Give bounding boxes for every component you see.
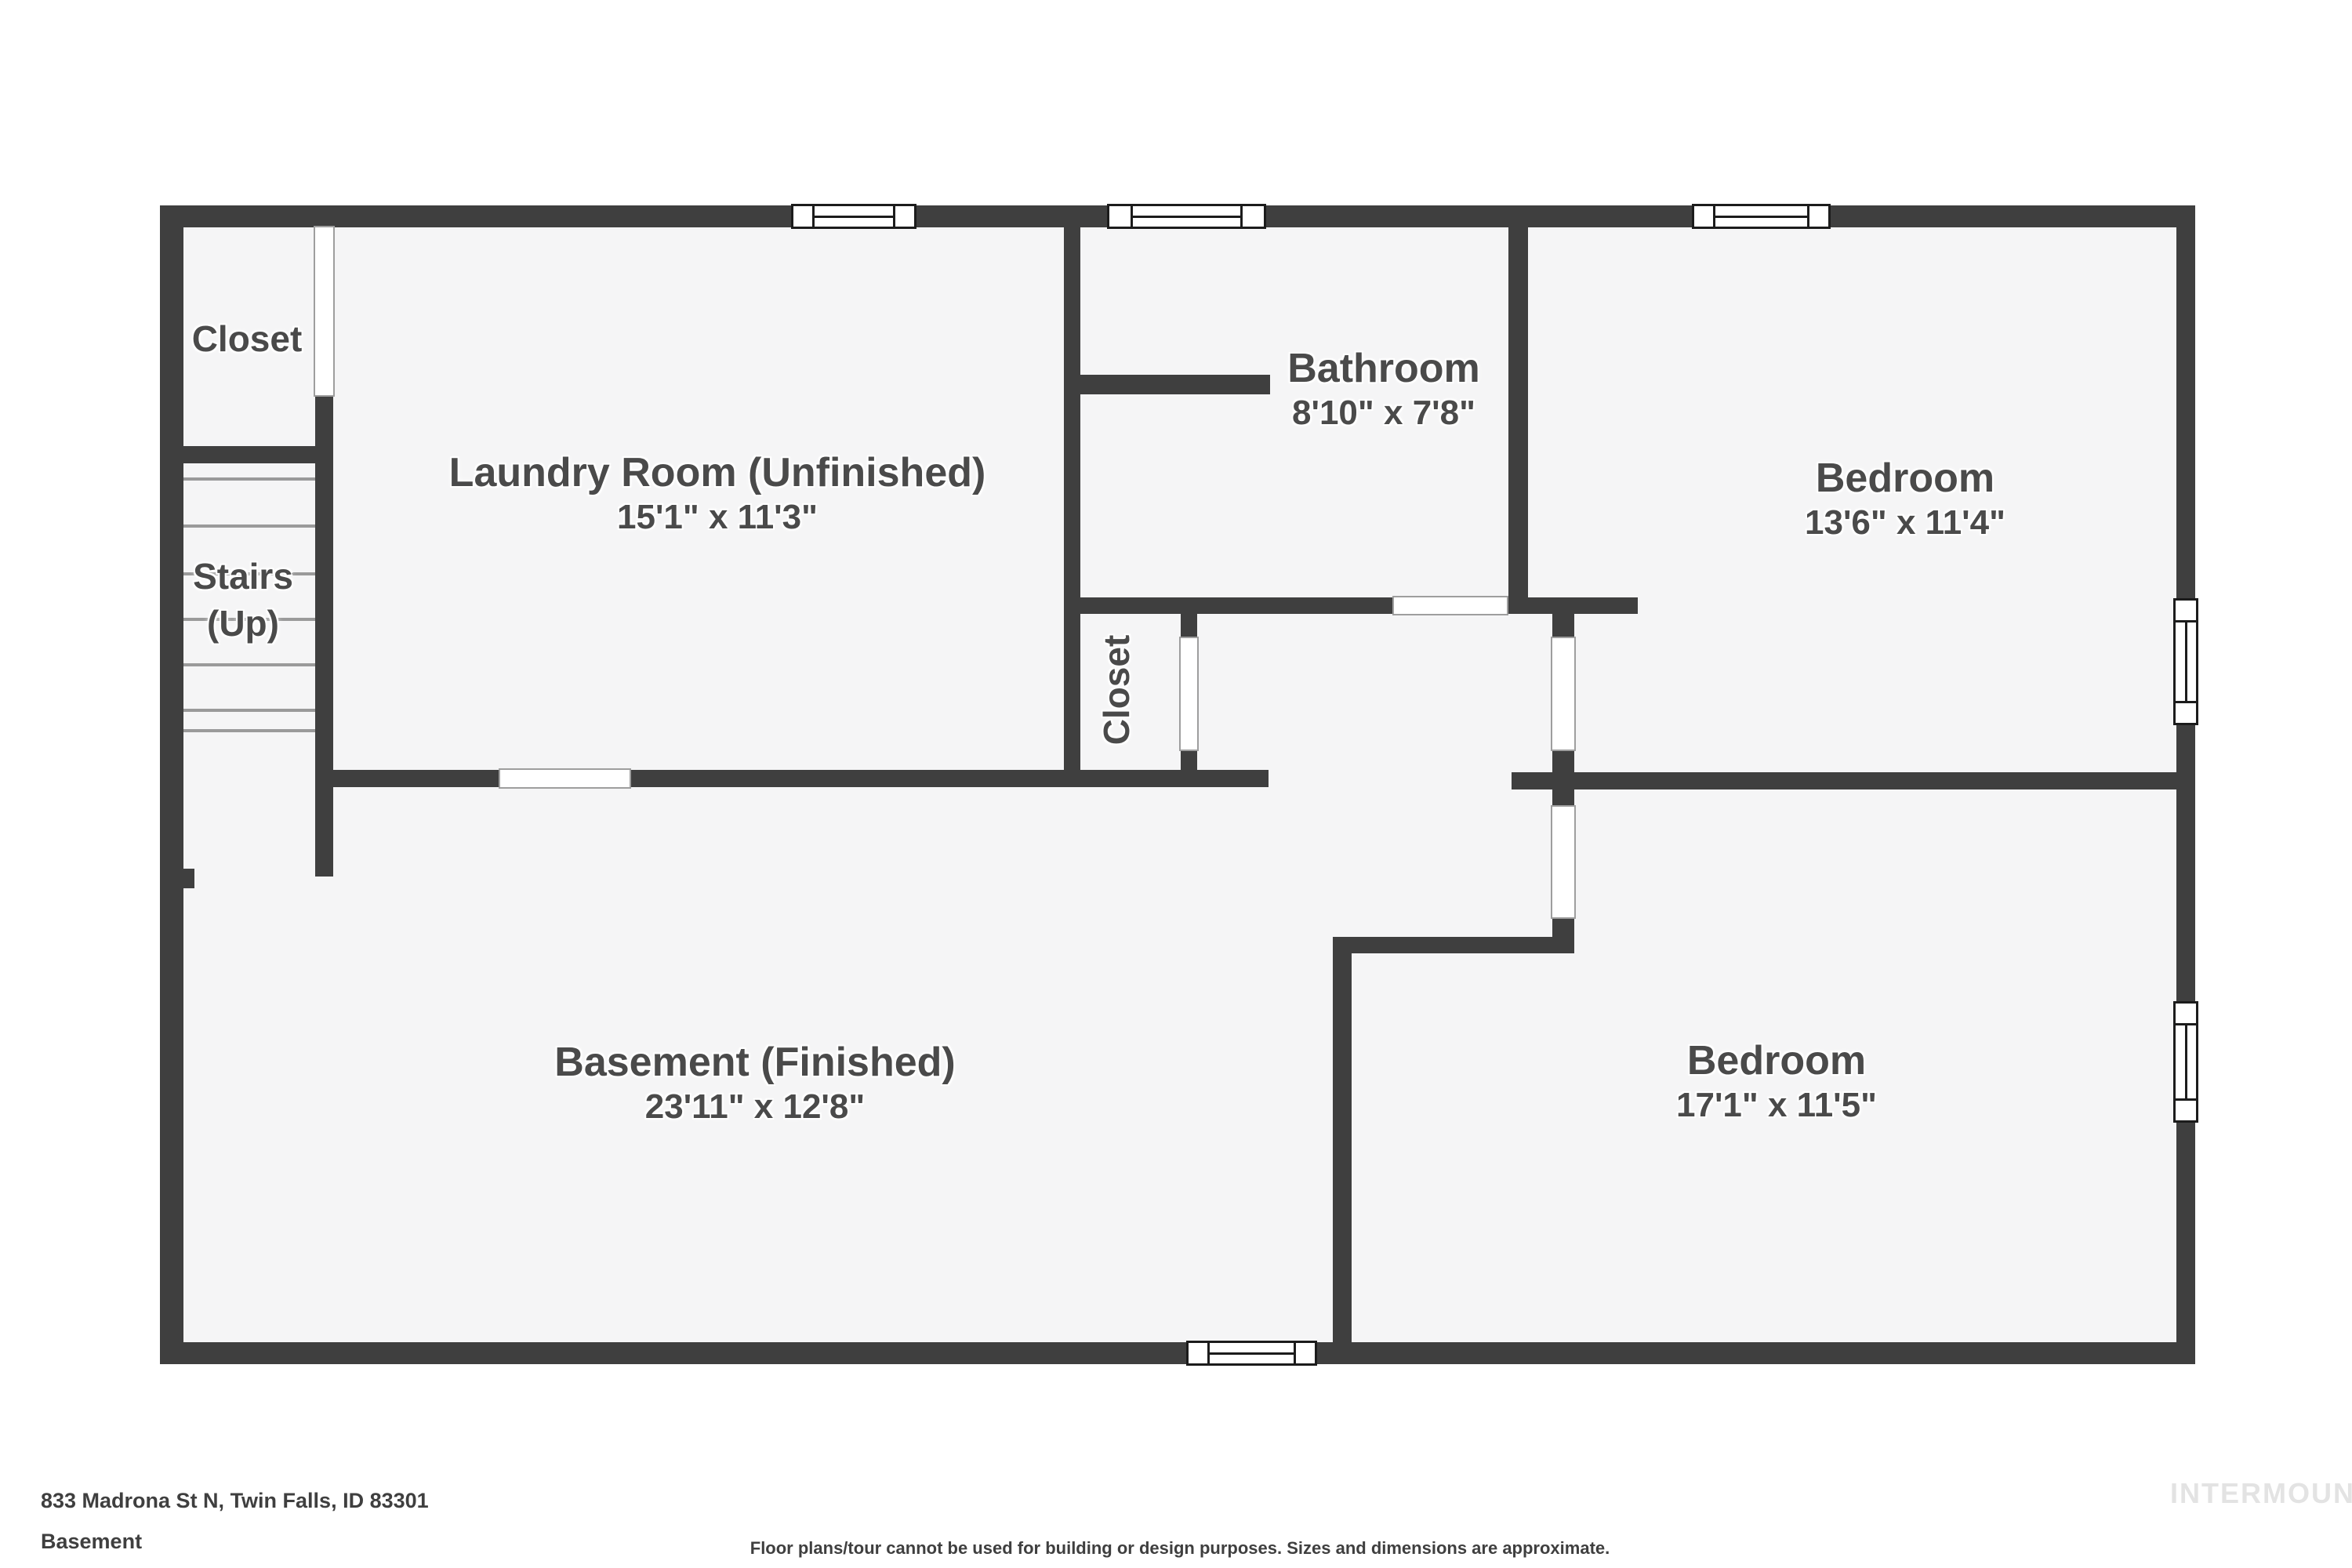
- stair-tread: [183, 477, 315, 481]
- stair-tread: [183, 663, 315, 666]
- bedroom-top-right-name: Bedroom: [1805, 455, 2005, 502]
- laundry-room-dimensions: 15'1" x 11'3": [449, 496, 986, 539]
- hall-closet-label: Closet: [1093, 635, 1140, 746]
- basement-label: Basement (Finished) 23'11" x 12'8": [554, 1039, 955, 1128]
- window-laundry-top: [791, 204, 916, 229]
- bathroom-label: Bathroom 8'10" x 7'8": [1287, 345, 1480, 434]
- wall-closet-top-left-bottom: [160, 446, 333, 463]
- stair-tread: [183, 729, 315, 732]
- window-bedroom-tr-right: [2173, 598, 2198, 725]
- wall-hall-closet-right-lower: [1181, 751, 1197, 787]
- wall-bathroom-bottom-left: [1080, 597, 1392, 614]
- wall-outer-bottom: [160, 1342, 2195, 1364]
- door-gap-bathroom: [1392, 596, 1508, 615]
- wall-outer-left: [160, 205, 183, 1364]
- door-gap-laundry: [499, 768, 631, 789]
- window-bathroom-top: [1107, 204, 1266, 229]
- wall-outer-right: [2176, 205, 2195, 1364]
- closet-top-left-name: Closet: [192, 315, 303, 362]
- door-gap-bedroom-bottom-right: [1551, 805, 1576, 919]
- stair-tread: [183, 709, 315, 712]
- door-gap-hall-closet: [1179, 637, 1199, 751]
- bedroom-bottom-right-name: Bedroom: [1676, 1037, 1877, 1084]
- basement-dimensions: 23'11" x 12'8": [554, 1086, 955, 1128]
- bedroom-bottom-right-label: Bedroom 17'1" x 11'5": [1676, 1037, 1877, 1127]
- stairs-direction: (Up): [193, 600, 293, 647]
- window-basement-bottom: [1186, 1341, 1317, 1366]
- wall-bathroom-right: [1508, 205, 1528, 597]
- disclaimer-text: Floor plans/tour cannot be used for buil…: [750, 1538, 1610, 1559]
- bathroom-name: Bathroom: [1287, 345, 1480, 392]
- wall-bathroom-half: [1080, 375, 1270, 394]
- wall-bedroom-br-left: [1333, 937, 1352, 1342]
- wall-nub-left: [183, 869, 194, 888]
- bathroom-dimensions: 8'10" x 7'8": [1287, 392, 1480, 434]
- watermark: INTERMOUNTAIN: [2170, 1477, 2352, 1510]
- bedroom-top-right-dimensions: 13'6" x 11'4": [1805, 502, 2005, 544]
- wall-laundry-bottom-left: [333, 770, 499, 787]
- property-address: 833 Madrona St N, Twin Falls, ID 83301: [41, 1488, 429, 1513]
- laundry-room-name: Laundry Room (Unfinished): [449, 449, 986, 496]
- window-bedroom-br-right: [2173, 1001, 2198, 1123]
- laundry-room-label: Laundry Room (Unfinished) 15'1" x 11'3": [449, 449, 986, 539]
- wall-laundry-bottom-right: [631, 770, 1269, 787]
- floor-level-label: Basement: [41, 1529, 142, 1554]
- wall-bedroom-divider: [1512, 772, 2176, 789]
- wall-laundry-bathroom-divider: [1064, 205, 1080, 787]
- door-gap-bedroom-top-right: [1551, 637, 1576, 751]
- door-gap-closet-top-left: [314, 226, 335, 397]
- wall-stairs-right: [315, 397, 333, 877]
- basement-name: Basement (Finished): [554, 1039, 955, 1086]
- stair-tread: [183, 524, 315, 528]
- floor-plan-page: { "rooms": { "closet_top_left": { "name"…: [0, 0, 2352, 1568]
- hall-closet-name: Closet: [1093, 635, 1140, 746]
- wall-hall-closet-right-upper: [1181, 614, 1197, 637]
- wall-hallway-seg-top: [1552, 597, 1574, 637]
- closet-top-left-label: Closet: [192, 315, 303, 362]
- bedroom-top-right-label: Bedroom 13'6" x 11'4": [1805, 455, 2005, 544]
- stairs-name: Stairs: [193, 553, 293, 600]
- bedroom-bottom-right-dimensions: 17'1" x 11'5": [1676, 1084, 1877, 1127]
- wall-bedroom-br-top: [1333, 937, 1574, 953]
- stairs-label: Stairs (Up): [193, 553, 293, 647]
- window-bedroom-tr-top: [1692, 204, 1831, 229]
